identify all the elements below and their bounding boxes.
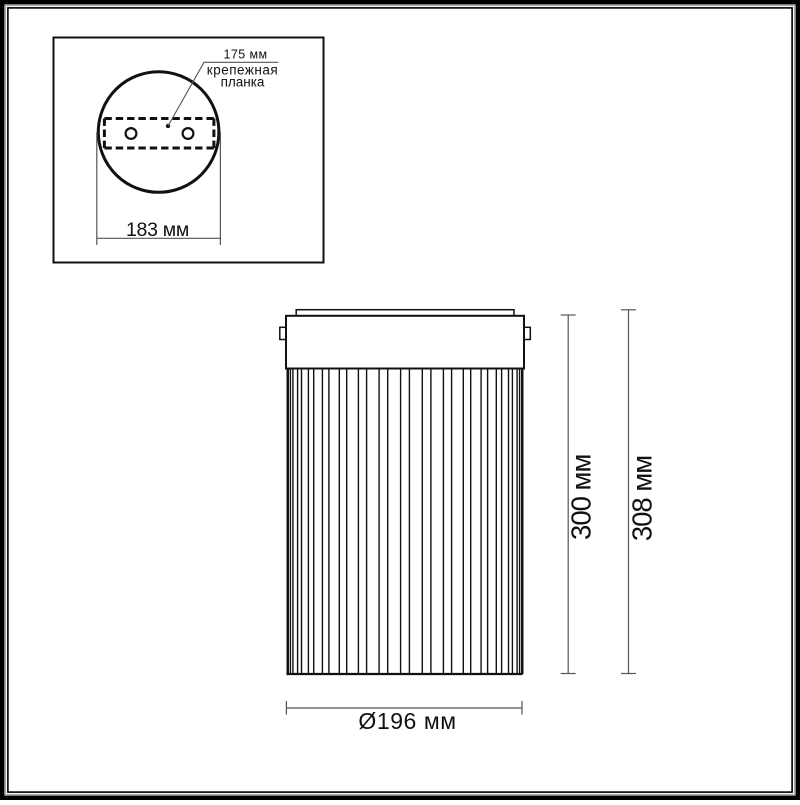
svg-text:175 мм: 175 мм bbox=[224, 48, 268, 62]
svg-text:Ø196 мм: Ø196 мм bbox=[358, 708, 456, 734]
svg-text:планка: планка bbox=[221, 74, 265, 89]
svg-text:308 мм: 308 мм bbox=[627, 456, 658, 541]
svg-text:183 мм: 183 мм bbox=[126, 219, 189, 241]
svg-text:300 мм: 300 мм bbox=[566, 455, 597, 540]
